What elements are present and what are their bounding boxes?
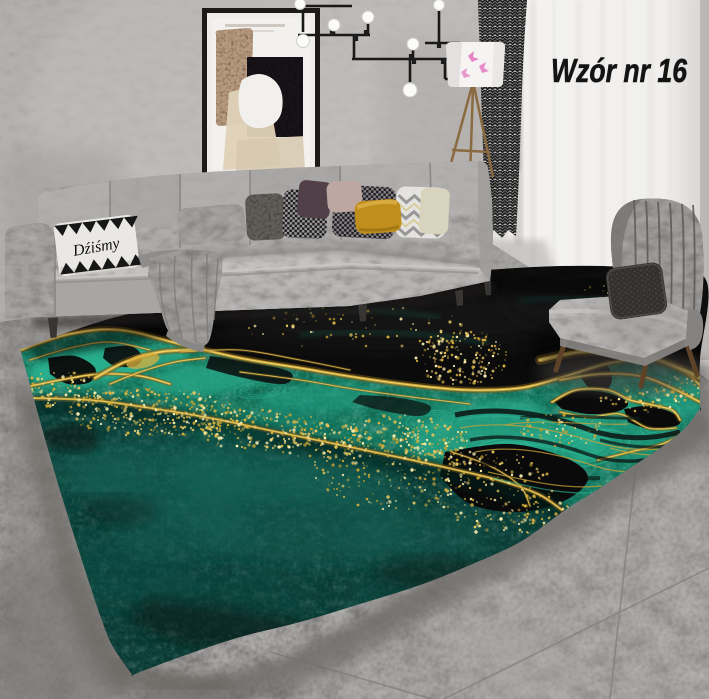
svg-text:Wzór nr 16: Wzór nr 16 [551, 52, 688, 89]
